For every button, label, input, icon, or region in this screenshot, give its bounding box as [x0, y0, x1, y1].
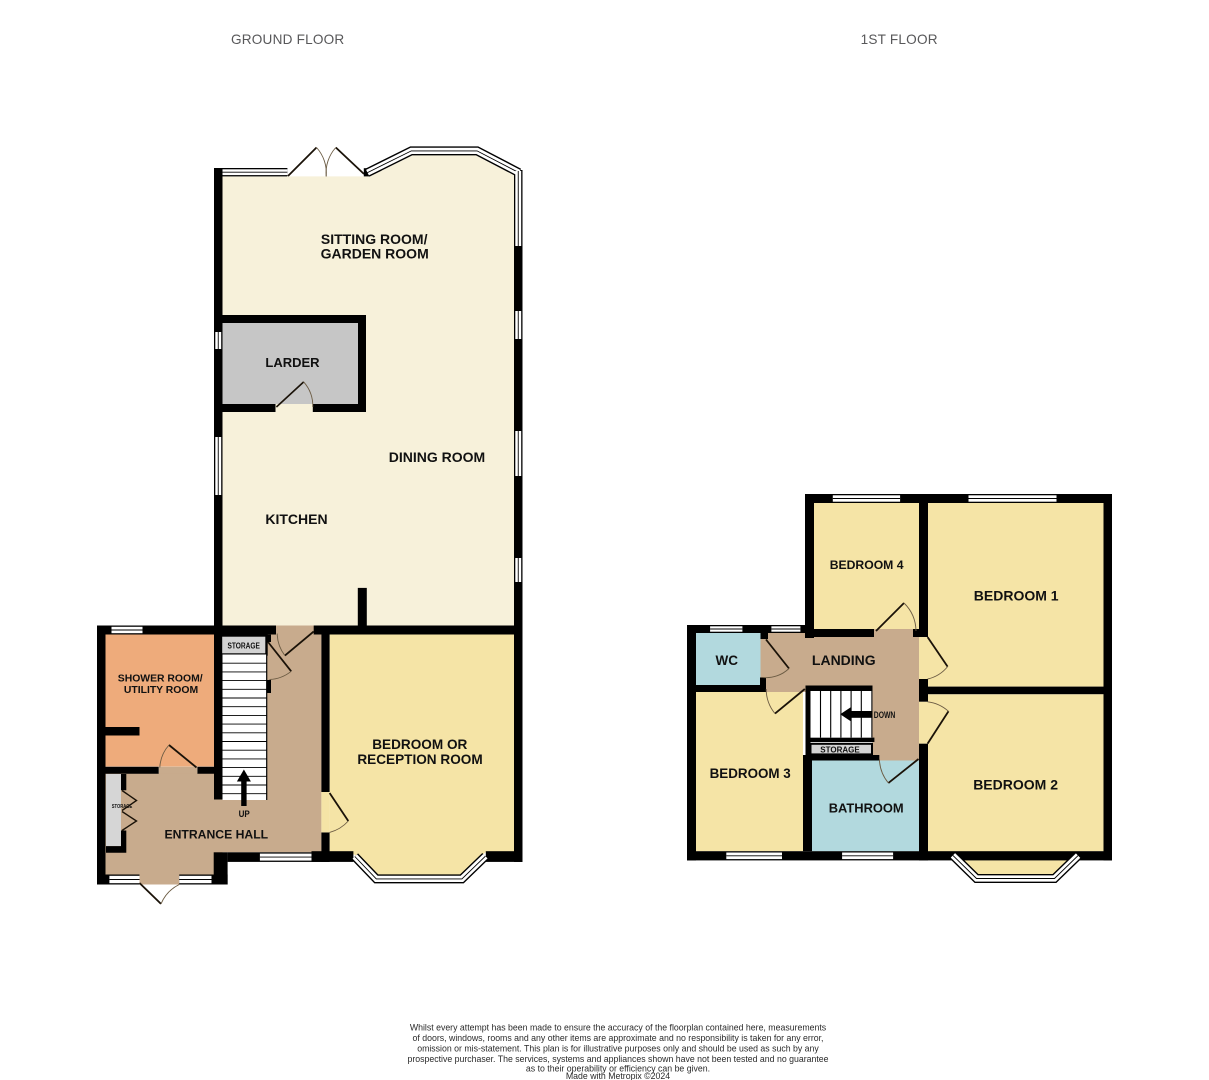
svg-text:BEDROOM 4: BEDROOM 4	[830, 558, 904, 572]
svg-text:DINING ROOM: DINING ROOM	[389, 449, 485, 465]
svg-text:GARDEN ROOM: GARDEN ROOM	[321, 245, 429, 261]
svg-text:ENTRANCE HALL: ENTRANCE HALL	[165, 827, 269, 841]
svg-text:1ST FLOOR: 1ST FLOOR	[861, 32, 938, 47]
svg-text:BEDROOM OR: BEDROOM OR	[372, 737, 467, 752]
svg-text:omission or mis-statement. Thi: omission or mis-statement. This plan is …	[417, 1043, 819, 1053]
svg-text:BEDROOM 3: BEDROOM 3	[710, 766, 791, 781]
svg-text:LANDING: LANDING	[812, 652, 876, 668]
svg-text:KITCHEN: KITCHEN	[265, 511, 327, 527]
svg-text:RECEPTION ROOM: RECEPTION ROOM	[357, 752, 482, 767]
svg-text:STORAGE: STORAGE	[820, 745, 860, 755]
svg-text:Made with Metropix ©2024: Made with Metropix ©2024	[566, 1071, 670, 1080]
svg-text:STORAGE: STORAGE	[112, 804, 133, 810]
svg-text:BATHROOM: BATHROOM	[829, 801, 904, 816]
svg-text:SHOWER ROOM/: SHOWER ROOM/	[118, 673, 203, 684]
svg-text:DOWN: DOWN	[874, 710, 896, 721]
svg-text:prospective purchaser. The ser: prospective purchaser. The services, sys…	[407, 1054, 828, 1064]
svg-text:of doors, windows, rooms and a: of doors, windows, rooms and any other i…	[413, 1033, 824, 1043]
svg-text:UTILITY ROOM: UTILITY ROOM	[124, 685, 198, 696]
svg-text:UP: UP	[239, 809, 250, 819]
svg-text:BEDROOM 2: BEDROOM 2	[973, 777, 1058, 793]
svg-text:GROUND FLOOR: GROUND FLOOR	[231, 32, 344, 47]
svg-text:BEDROOM 1: BEDROOM 1	[974, 588, 1059, 604]
svg-text:Whilst every attempt has been: Whilst every attempt has been made to en…	[410, 1023, 827, 1033]
svg-text:LARDER: LARDER	[265, 355, 320, 370]
svg-text:WC: WC	[716, 653, 739, 668]
svg-text:STORAGE: STORAGE	[227, 641, 260, 650]
